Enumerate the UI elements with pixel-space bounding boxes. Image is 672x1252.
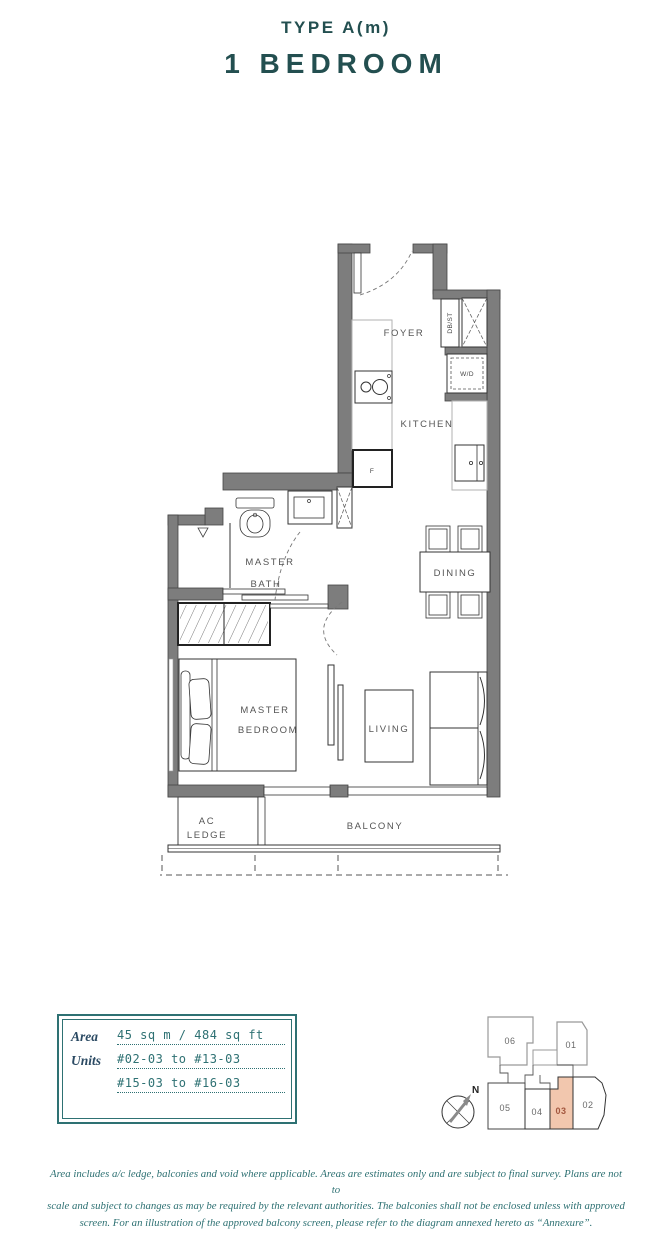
kitchen-sink	[455, 445, 484, 481]
units-value-2: #15-03 to #16-03	[117, 1076, 285, 1093]
dbst-label: DB/ST	[447, 312, 454, 333]
area-row: Area 45 sq m / 484 sq ft	[71, 1028, 285, 1045]
drip-line	[160, 855, 508, 875]
ac-ledge-label-2: LEDGE	[187, 830, 227, 841]
toilet	[236, 498, 274, 537]
units-row: Units #02-03 to #13-03	[71, 1052, 285, 1069]
area-value: 45 sq m / 484 sq ft	[117, 1028, 285, 1045]
unit-06-label: 06	[504, 1036, 515, 1046]
balcony-label: BALCONY	[347, 821, 404, 832]
ac-ledge-label-1: AC	[199, 816, 215, 827]
balcony-divider	[258, 797, 265, 845]
bedroom-door-swing	[324, 602, 342, 655]
unit-02-label: 02	[582, 1100, 593, 1110]
sliding-partition-panel	[338, 685, 343, 760]
bathroom-vanity	[288, 491, 332, 524]
compass-icon	[442, 1094, 474, 1128]
shower-slope-marker	[198, 528, 208, 537]
washer-dryer-label: W/D	[460, 371, 474, 378]
units-label: Units	[71, 1053, 117, 1069]
north-label: N	[472, 1085, 479, 1096]
balcony-railing	[168, 845, 500, 852]
master-bedroom-label-1: MASTER	[240, 705, 289, 716]
foyer-label: FOYER	[384, 328, 425, 339]
balcony-door-window	[348, 787, 487, 795]
info-box: Area 45 sq m / 484 sq ft Units #02-03 to…	[57, 1014, 297, 1124]
bath-sliding-door	[223, 589, 308, 600]
unit-03-label: 03	[555, 1106, 566, 1116]
key-plan: 06 01 05 04 03 02 N	[430, 1005, 642, 1155]
floor-plan: DB/ST W/D F FOYER KITCHEN	[160, 235, 510, 880]
type-label: TYPE A(m)	[0, 18, 672, 38]
cooktop	[355, 371, 392, 403]
sliding-partition-panel	[328, 665, 334, 745]
bath-shaft	[337, 487, 352, 528]
master-bedroom-label-2: BEDROOM	[238, 725, 298, 736]
disclaimer-line-3: screen. For an illustration of the appro…	[80, 1217, 593, 1229]
page-title: 1 BEDROOM	[0, 48, 672, 80]
unit-05-label: 05	[499, 1103, 510, 1113]
sofa	[430, 672, 487, 785]
fridge-label: F	[370, 468, 374, 475]
entrance-door-swing	[360, 251, 412, 295]
master-bath-label-1: MASTER	[245, 557, 294, 568]
entrance-door-leaf	[354, 253, 361, 293]
balcony-door-window	[264, 787, 330, 795]
units-row-2: #15-03 to #16-03	[71, 1076, 285, 1093]
unit-03-shape	[550, 1077, 573, 1129]
bedroom-window	[169, 659, 173, 771]
disclaimer: Area includes a/c ledge, balconies and v…	[46, 1166, 626, 1231]
disclaimer-line-2: scale and subject to changes as may be r…	[47, 1200, 625, 1212]
kitchen-label: KITCHEN	[401, 419, 454, 430]
unit-01-label: 01	[565, 1040, 576, 1050]
units-value-1: #02-03 to #13-03	[117, 1052, 285, 1069]
master-bath-label-2: BATH	[250, 579, 281, 590]
unit-04-label: 04	[531, 1107, 542, 1117]
dining-label: DINING	[434, 568, 477, 579]
disclaimer-line-1: Area includes a/c ledge, balconies and v…	[50, 1168, 622, 1196]
living-label: LIVING	[369, 724, 410, 735]
wardrobe	[178, 603, 328, 645]
core-shape	[533, 1050, 557, 1065]
area-label: Area	[71, 1029, 117, 1045]
